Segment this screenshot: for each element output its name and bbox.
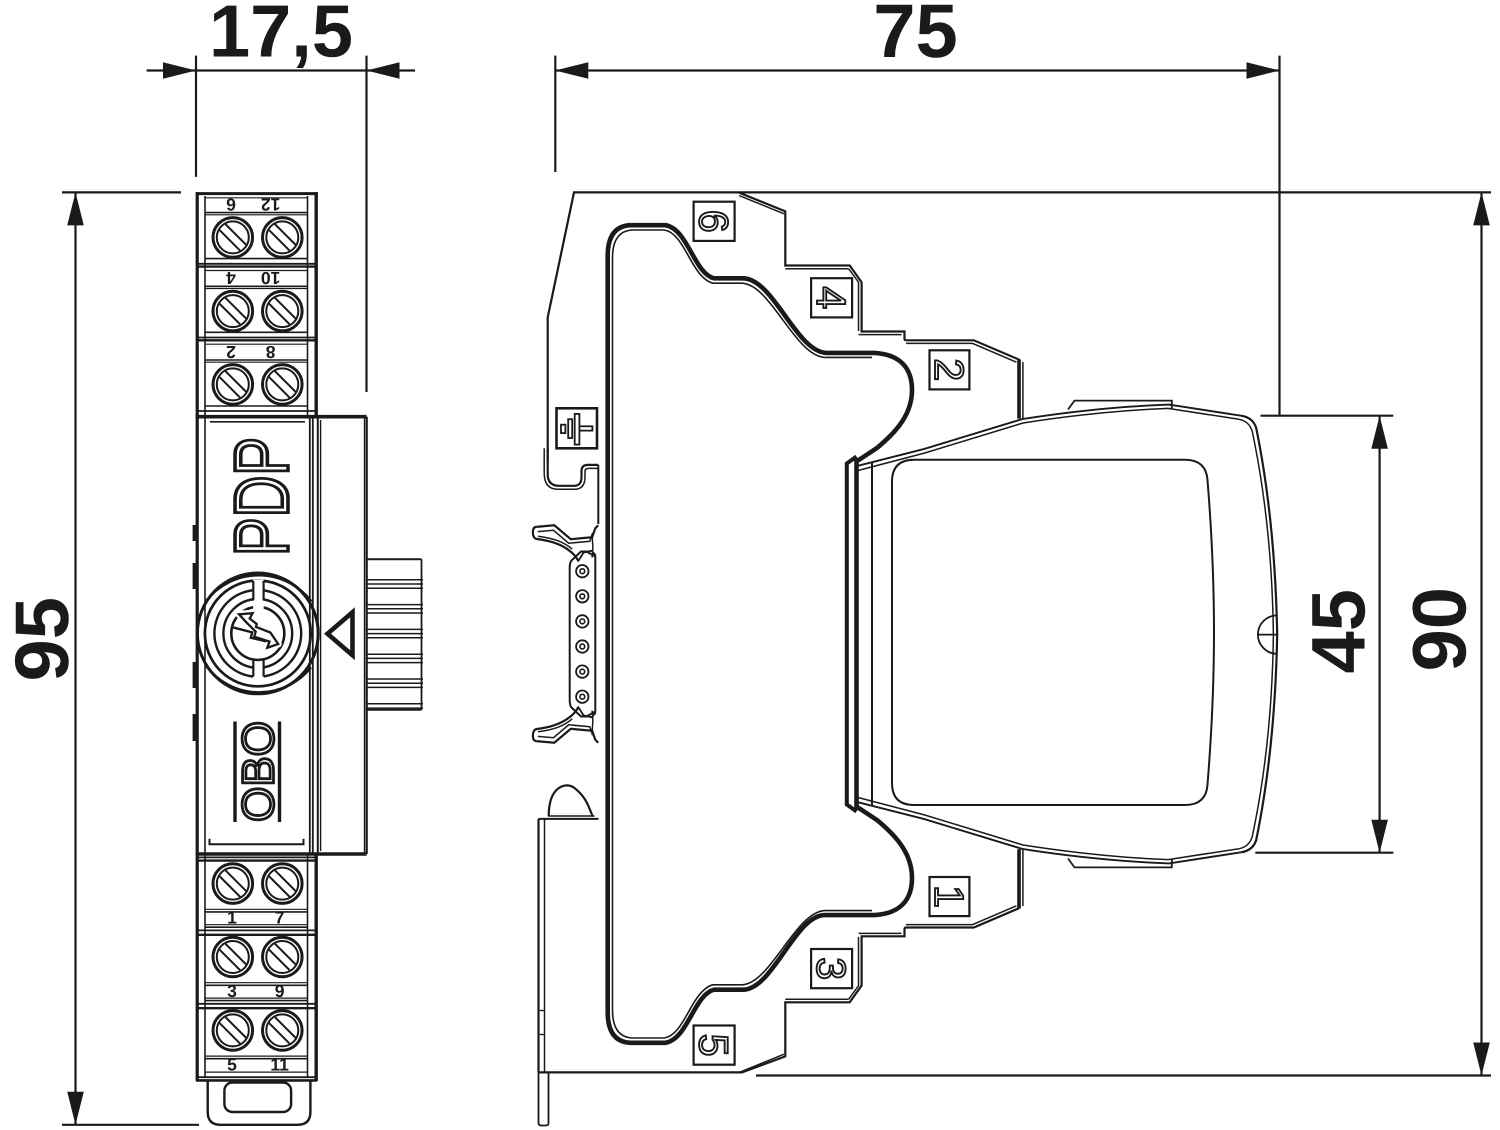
svg-text:6: 6 [691, 210, 737, 233]
svg-text:5: 5 [227, 1054, 237, 1074]
svg-text:PDP: PDP [219, 437, 305, 556]
svg-text:3: 3 [808, 957, 854, 980]
svg-text:5: 5 [691, 1034, 737, 1057]
svg-text:90: 90 [1397, 587, 1482, 672]
svg-text:10: 10 [261, 268, 281, 288]
svg-text:12: 12 [261, 194, 281, 214]
svg-text:45: 45 [1297, 589, 1382, 674]
svg-text:2: 2 [226, 342, 236, 362]
svg-text:8: 8 [265, 342, 275, 362]
svg-text:2: 2 [926, 358, 972, 381]
svg-text:OBO: OBO [233, 721, 284, 822]
svg-text:11: 11 [270, 1054, 289, 1074]
svg-text:4: 4 [808, 286, 854, 309]
svg-text:17,5: 17,5 [209, 0, 353, 73]
svg-text:95: 95 [0, 597, 85, 682]
svg-text:6: 6 [226, 194, 236, 214]
svg-text:75: 75 [873, 0, 958, 74]
svg-text:4: 4 [226, 268, 236, 288]
svg-text:1: 1 [926, 885, 972, 908]
